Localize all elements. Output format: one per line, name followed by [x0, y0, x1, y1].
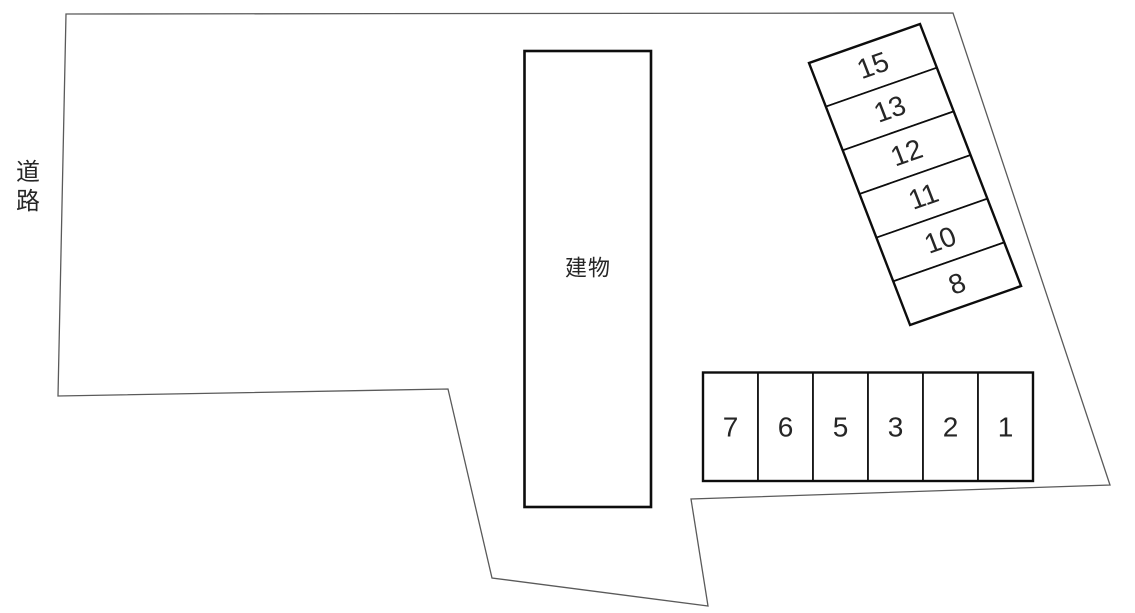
- building: 建物: [525, 51, 652, 507]
- site-plan-canvas: 建物 15 13 12 11 10 8 7: [0, 0, 1135, 613]
- stall-6-label: 6: [778, 412, 794, 443]
- site-plan: 道路 建物 15 13 12 11 10 8: [0, 0, 1135, 613]
- stall-5-label: 5: [833, 412, 849, 443]
- stall-2-label: 2: [943, 412, 959, 443]
- stall-3-label: 3: [888, 412, 904, 443]
- road-label: 道路: [14, 159, 42, 217]
- stall-7-label: 7: [723, 412, 739, 443]
- diagonal-parking-group: 15 13 12 11 10 8: [809, 24, 1021, 325]
- building-label: 建物: [565, 256, 611, 281]
- row-parking-group: 7 6 5 3 2 1: [703, 373, 1033, 482]
- stall-1-label: 1: [998, 412, 1014, 443]
